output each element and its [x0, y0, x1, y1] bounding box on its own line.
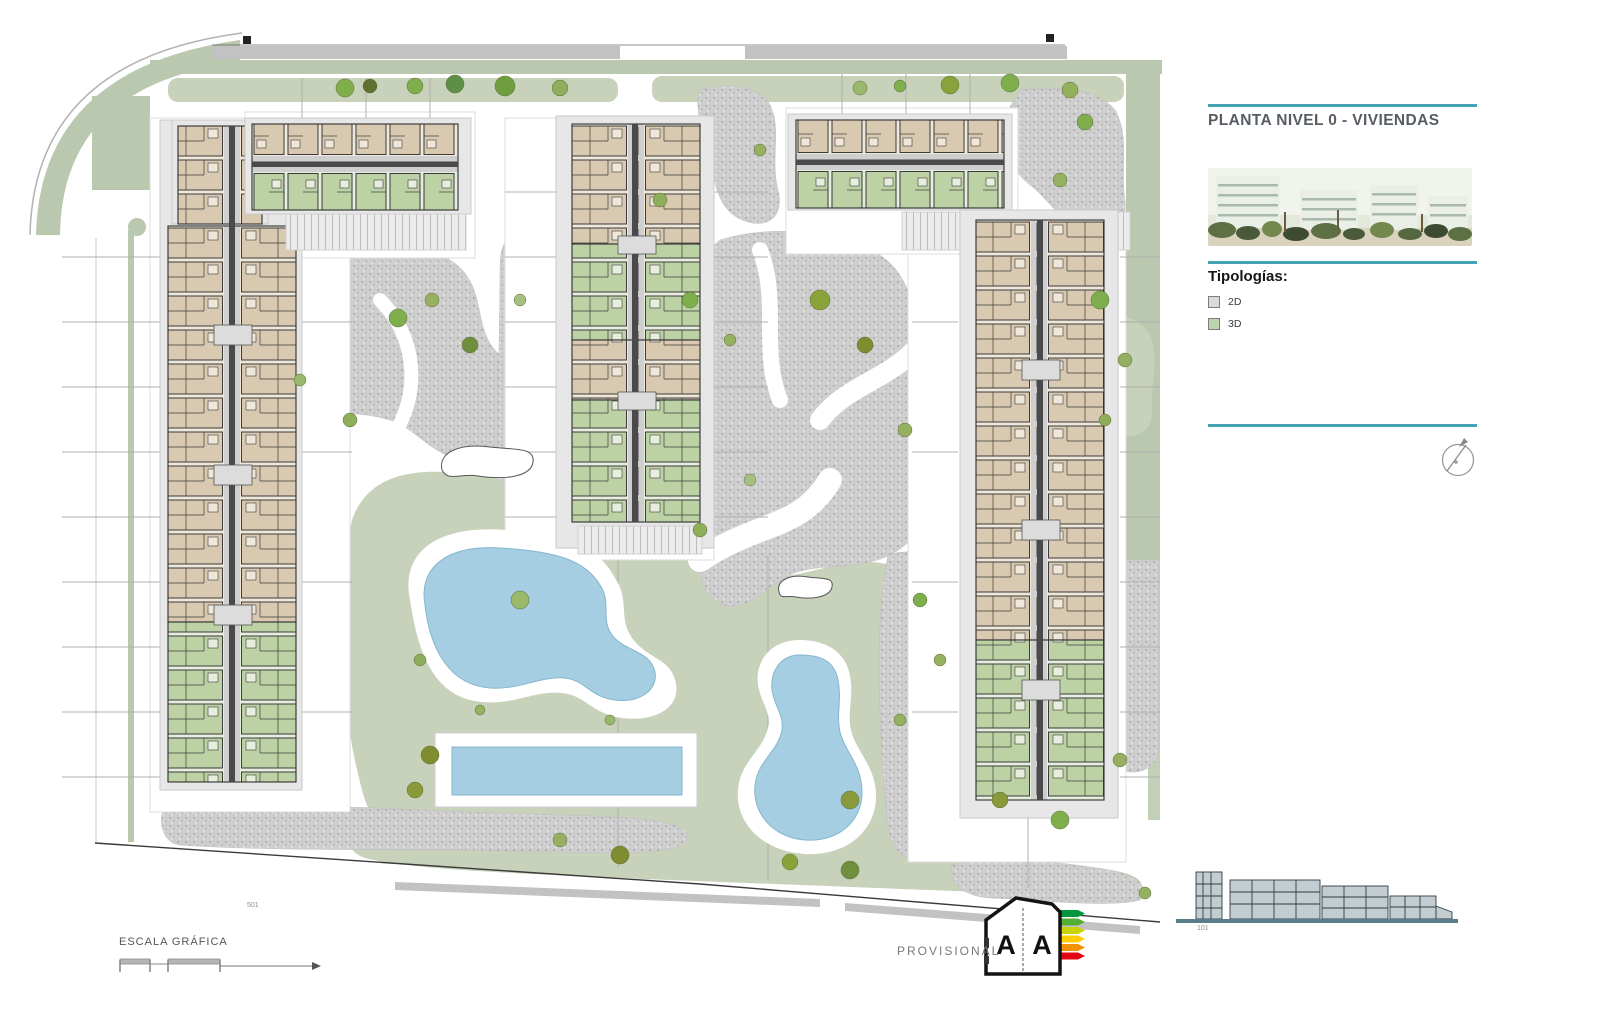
- legend-swatch-2d: [1208, 296, 1220, 308]
- legend-label-2d: 2D: [1228, 296, 1241, 308]
- pool-lap: [435, 733, 697, 807]
- building-left: [160, 120, 302, 790]
- scale-bar: [120, 959, 321, 972]
- typologies-rule-bottom: [1208, 424, 1477, 427]
- legend-swatch-3d: [1208, 318, 1220, 330]
- legend-label-3d: 3D: [1228, 318, 1241, 330]
- elevation-drawing: [1176, 872, 1458, 923]
- scale-label: ESCALA GRÁFICA: [119, 936, 228, 948]
- energy-rating-letter-left: A: [992, 930, 1020, 961]
- north-arrow-icon: [1443, 438, 1474, 476]
- typologies-rule-top: [1208, 261, 1477, 264]
- sheet: PLANTA NIVEL 0 - VIVIENDAS Tipologías: 2…: [0, 0, 1600, 1024]
- legend-item-3d: 3D: [1208, 317, 1241, 331]
- typologies-heading: Tipologías:: [1208, 268, 1288, 285]
- site-plan-drawing: [0, 0, 1600, 1024]
- title-rule: [1208, 104, 1477, 107]
- elevation-ref-label: 101: [1197, 925, 1209, 932]
- project-render-image: [1208, 168, 1472, 246]
- page-title: PLANTA NIVEL 0 - VIVIENDAS: [1208, 112, 1498, 130]
- building-middle: [556, 116, 714, 554]
- provisional-label: PROVISIONAL: [897, 944, 1000, 958]
- legend-item-2d: 2D: [1208, 295, 1241, 309]
- energy-rating-letter-right: A: [1028, 930, 1056, 961]
- plan-ref-label: 501: [247, 902, 259, 909]
